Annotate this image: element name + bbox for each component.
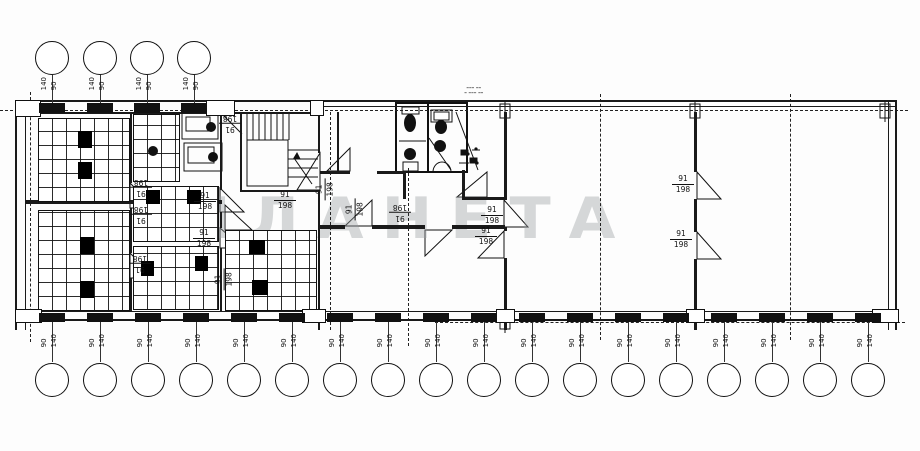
wall-segment bbox=[462, 197, 505, 200]
window-opening bbox=[663, 313, 689, 322]
window-size-label: 90140 bbox=[185, 334, 202, 347]
wall-pilaster bbox=[15, 309, 42, 323]
window-size-right: 140 bbox=[195, 334, 202, 347]
fixture-dot bbox=[208, 152, 218, 162]
door-width: 91 bbox=[389, 212, 411, 222]
wall-segment bbox=[462, 170, 465, 199]
door-size-label: 91198 bbox=[346, 198, 365, 220]
door-width: 91 bbox=[481, 206, 503, 216]
window-size-right: 90 bbox=[99, 77, 106, 90]
door-size-label: 91198 bbox=[316, 178, 335, 200]
wall-segment bbox=[377, 171, 403, 174]
wall-segment bbox=[15, 311, 897, 312]
window-opening bbox=[134, 103, 160, 113]
door-height: 198 bbox=[670, 240, 692, 249]
window-size-right: 140 bbox=[51, 334, 58, 347]
door-size-label: 91198 bbox=[130, 205, 152, 224]
window-opening bbox=[375, 313, 401, 322]
door-height: 198 bbox=[475, 237, 497, 246]
window-size-right: 140 bbox=[339, 334, 346, 347]
door-size-label: 91198 bbox=[215, 268, 234, 290]
window-size-label: 90140 bbox=[569, 334, 586, 347]
window-size-label: 90140 bbox=[665, 334, 682, 347]
window-size-label: 90140 bbox=[473, 334, 490, 347]
door-width: 91 bbox=[475, 227, 497, 237]
axis-circle bbox=[323, 363, 357, 397]
window-size-left: 90 bbox=[281, 334, 288, 347]
door-width: 91 bbox=[129, 263, 151, 273]
door-height: 198 bbox=[225, 268, 234, 290]
door-width: 91 bbox=[219, 123, 241, 133]
tile-accent-cell bbox=[252, 280, 268, 295]
window-size-left: 90 bbox=[425, 334, 432, 347]
window-size-right: 140 bbox=[867, 334, 874, 347]
door-size-label: 91198 bbox=[129, 254, 151, 273]
window-size-label: 90140 bbox=[137, 334, 154, 347]
tile-accent-cell bbox=[80, 281, 94, 298]
window-size-right: 90 bbox=[193, 77, 200, 90]
axis-line-vertical bbox=[30, 92, 31, 342]
window-size-left: 140 bbox=[89, 77, 96, 90]
window-opening bbox=[231, 313, 257, 322]
axis-line-vertical bbox=[330, 112, 331, 330]
door-height: 198 bbox=[130, 178, 152, 187]
window-size-left: 90 bbox=[41, 334, 48, 347]
axis-circle bbox=[803, 363, 837, 397]
door-size-label: 91198 bbox=[389, 203, 411, 222]
door-height: 198 bbox=[326, 178, 335, 200]
door-height: 198 bbox=[130, 205, 152, 214]
wall-segment bbox=[694, 112, 697, 172]
axis-circle bbox=[227, 363, 261, 397]
door-width: 91 bbox=[346, 198, 356, 220]
window-size-label: 90140 bbox=[521, 334, 538, 347]
window-size-label: 14090 bbox=[136, 77, 153, 90]
door-height: 198 bbox=[274, 201, 296, 210]
door-size-label: 91198 bbox=[481, 206, 503, 225]
tile-accent-cell bbox=[249, 240, 265, 254]
window-size-label: 90140 bbox=[41, 334, 58, 347]
window-size-left: 90 bbox=[713, 334, 720, 347]
axis-circle bbox=[467, 363, 501, 397]
window-opening bbox=[807, 313, 833, 322]
window-size-left: 140 bbox=[41, 77, 48, 90]
door-height: 198 bbox=[129, 254, 151, 263]
fixture-dot bbox=[206, 122, 216, 132]
window-size-right: 90 bbox=[51, 77, 58, 90]
wall-segment bbox=[320, 106, 897, 107]
door-size-label: 91198 bbox=[274, 191, 296, 210]
door-width: 91 bbox=[130, 214, 152, 224]
door-height: 198 bbox=[193, 239, 215, 248]
window-size-label: 90140 bbox=[329, 334, 346, 347]
wall-segment bbox=[320, 225, 345, 229]
window-size-right: 140 bbox=[387, 334, 394, 347]
wall-segment bbox=[15, 100, 17, 330]
axis-circle bbox=[419, 363, 453, 397]
window-size-left: 90 bbox=[521, 334, 528, 347]
axis-circle bbox=[563, 363, 597, 397]
tiny-annotation: ━━━ ━━ ━ ━━━ ━━ bbox=[447, 86, 501, 96]
window-size-left: 90 bbox=[329, 334, 336, 347]
window-opening bbox=[87, 313, 113, 322]
window-opening bbox=[759, 313, 785, 322]
window-opening bbox=[87, 103, 113, 113]
window-opening bbox=[327, 313, 353, 322]
window-opening bbox=[519, 313, 545, 322]
window-size-left: 90 bbox=[185, 334, 192, 347]
window-size-right: 140 bbox=[243, 334, 250, 347]
window-size-left: 140 bbox=[183, 77, 190, 90]
door-height: 198 bbox=[356, 198, 365, 220]
window-size-right: 140 bbox=[627, 334, 634, 347]
window-size-label: 90140 bbox=[617, 334, 634, 347]
window-opening bbox=[855, 313, 881, 322]
wall-segment bbox=[372, 225, 425, 229]
window-size-label: 14090 bbox=[183, 77, 200, 90]
axis-circle bbox=[755, 363, 789, 397]
axis-circle bbox=[611, 363, 645, 397]
axis-line-vertical bbox=[790, 94, 791, 340]
window-size-left: 90 bbox=[761, 334, 768, 347]
door-size-label: 91198 bbox=[130, 178, 152, 197]
wall-segment bbox=[25, 101, 26, 330]
window-size-left: 90 bbox=[137, 334, 144, 347]
window-size-right: 140 bbox=[99, 334, 106, 347]
tile-accent-cell bbox=[80, 237, 94, 254]
axis-circle bbox=[177, 41, 211, 75]
window-size-left: 90 bbox=[377, 334, 384, 347]
window-opening bbox=[183, 313, 209, 322]
door-size-label: 91198 bbox=[194, 192, 216, 211]
wall-segment bbox=[504, 227, 507, 231]
window-size-label: 90140 bbox=[377, 334, 394, 347]
window-size-label: 14090 bbox=[41, 77, 58, 90]
wall-pilaster bbox=[310, 100, 324, 116]
door-size-label: 91198 bbox=[672, 175, 694, 194]
door-width: 91 bbox=[672, 175, 694, 185]
window-size-right: 90 bbox=[146, 77, 153, 90]
door-height: 198 bbox=[672, 185, 694, 194]
window-size-label: 14090 bbox=[89, 77, 106, 90]
window-size-label: 90140 bbox=[761, 334, 778, 347]
door-width: 91 bbox=[274, 191, 296, 201]
door-width: 91 bbox=[316, 178, 326, 200]
window-opening bbox=[471, 313, 497, 322]
window-size-left: 90 bbox=[233, 334, 240, 347]
window-size-left: 90 bbox=[569, 334, 576, 347]
axis-circle bbox=[130, 41, 164, 75]
window-opening bbox=[181, 103, 207, 113]
window-opening bbox=[135, 313, 161, 322]
window-size-right: 140 bbox=[579, 334, 586, 347]
tiny-annotation-line2: ━ ━━━ ━━ bbox=[447, 91, 501, 96]
window-opening bbox=[615, 313, 641, 322]
window-size-label: 90140 bbox=[809, 334, 826, 347]
axis-circle bbox=[371, 363, 405, 397]
window-size-right: 140 bbox=[723, 334, 730, 347]
door-height: 198 bbox=[389, 203, 411, 212]
window-opening bbox=[711, 313, 737, 322]
tile-accent-cell bbox=[195, 256, 208, 271]
window-opening bbox=[39, 313, 65, 322]
axis-circle bbox=[131, 363, 165, 397]
wall-segment bbox=[318, 112, 320, 153]
wall-segment bbox=[130, 112, 132, 183]
window-size-label: 90140 bbox=[281, 334, 298, 347]
window-size-right: 140 bbox=[147, 334, 154, 347]
door-width: 91 bbox=[130, 187, 152, 197]
wall-pilaster bbox=[15, 100, 41, 117]
door-height: 198 bbox=[219, 114, 241, 123]
tile-accent-cell bbox=[78, 162, 92, 179]
window-size-left: 90 bbox=[809, 334, 816, 347]
axis-circle bbox=[515, 363, 549, 397]
wall-segment bbox=[888, 101, 889, 330]
window-size-left: 90 bbox=[857, 334, 864, 347]
door-size-label: 91198 bbox=[670, 230, 692, 249]
door-width: 91 bbox=[670, 230, 692, 240]
window-size-label: 90140 bbox=[233, 334, 250, 347]
fixture-dot bbox=[148, 146, 158, 156]
wall-segment bbox=[220, 212, 222, 228]
window-size-label: 90140 bbox=[89, 334, 106, 347]
axis-line-vertical bbox=[600, 94, 601, 340]
axis-circle bbox=[83, 41, 117, 75]
wall-pilaster bbox=[496, 309, 515, 323]
window-opening bbox=[39, 103, 65, 113]
wall-segment bbox=[320, 171, 350, 174]
window-size-right: 140 bbox=[483, 334, 490, 347]
window-size-left: 90 bbox=[617, 334, 624, 347]
tile-accent-cell bbox=[78, 131, 92, 148]
wall-segment bbox=[694, 199, 697, 232]
axis-circle bbox=[35, 363, 69, 397]
window-opening bbox=[423, 313, 449, 322]
window-size-right: 140 bbox=[435, 334, 442, 347]
window-opening bbox=[567, 313, 593, 322]
window-size-left: 90 bbox=[473, 334, 480, 347]
door-width: 91 bbox=[193, 229, 215, 239]
tiled-room bbox=[225, 230, 317, 311]
window-size-right: 140 bbox=[531, 334, 538, 347]
window-size-left: 90 bbox=[665, 334, 672, 347]
window-size-right: 140 bbox=[675, 334, 682, 347]
window-size-label: 90140 bbox=[713, 334, 730, 347]
door-size-label: 91198 bbox=[475, 227, 497, 246]
wall-segment bbox=[337, 112, 339, 171]
window-size-left: 90 bbox=[89, 334, 96, 347]
wall-segment bbox=[130, 278, 132, 311]
window-size-label: 90140 bbox=[425, 334, 442, 347]
door-size-label: 91198 bbox=[193, 229, 215, 248]
door-height: 198 bbox=[481, 216, 503, 225]
window-size-label: 90140 bbox=[857, 334, 874, 347]
window-size-right: 140 bbox=[291, 334, 298, 347]
window-size-left: 140 bbox=[136, 77, 143, 90]
wall-pilaster bbox=[302, 309, 326, 323]
window-size-right: 140 bbox=[819, 334, 826, 347]
door-height: 198 bbox=[194, 202, 216, 211]
axis-circle bbox=[707, 363, 741, 397]
axis-circle bbox=[179, 363, 213, 397]
axis-circle bbox=[659, 363, 693, 397]
door-size-label: 91198 bbox=[219, 114, 241, 133]
axis-circle bbox=[35, 41, 69, 75]
door-width: 91 bbox=[194, 192, 216, 202]
window-size-right: 140 bbox=[771, 334, 778, 347]
wall-segment bbox=[220, 176, 222, 190]
door-width: 91 bbox=[215, 268, 225, 290]
axis-circle bbox=[83, 363, 117, 397]
wall-segment bbox=[504, 112, 507, 200]
wall-segment bbox=[895, 100, 897, 330]
wall-segment bbox=[403, 171, 406, 199]
floor-plan-drawing: ПЛАНЕТА ━━━ ━━ ━ ━━━ ━━ 1409014090140901… bbox=[0, 0, 920, 451]
axis-circle bbox=[275, 363, 309, 397]
axis-circle bbox=[851, 363, 885, 397]
window-opening bbox=[279, 313, 305, 322]
